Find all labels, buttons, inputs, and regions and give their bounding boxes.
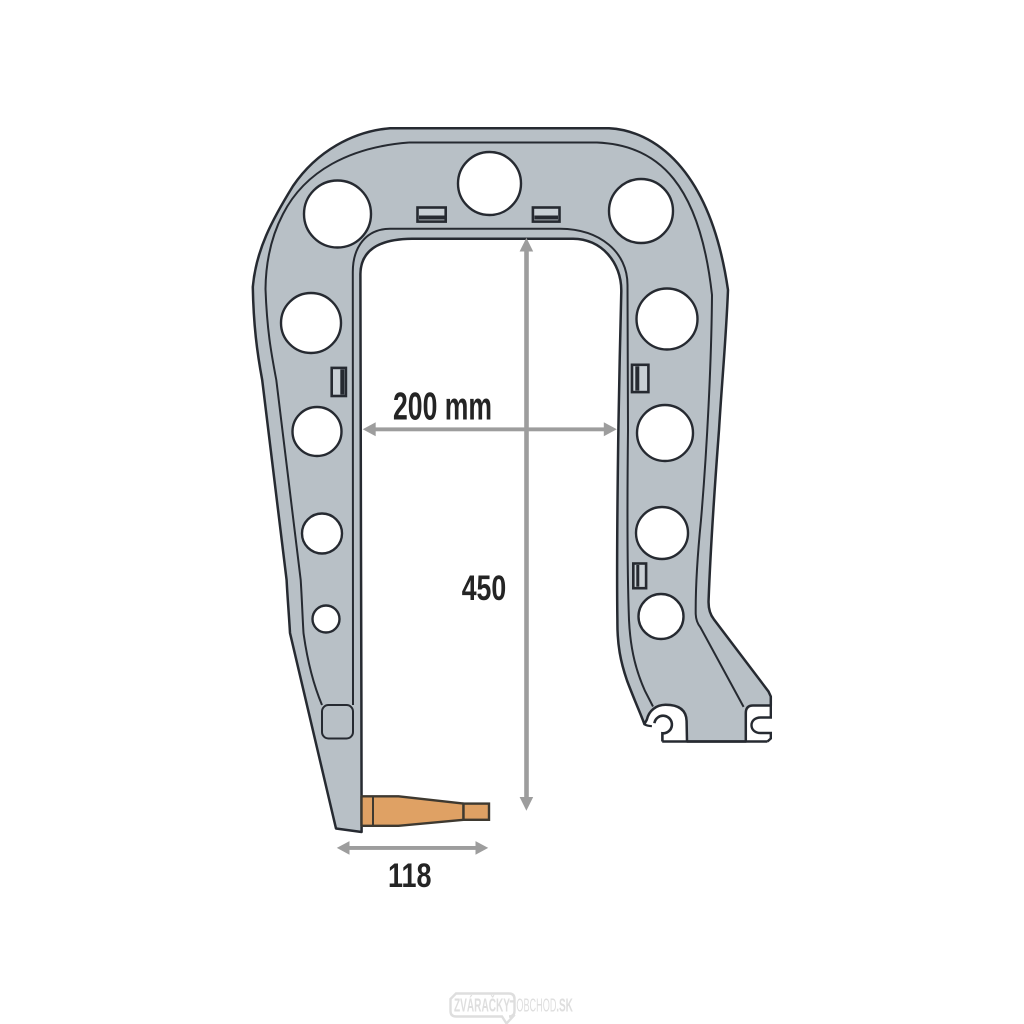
- svg-text:OBCHOD: OBCHOD: [516, 995, 556, 1016]
- svg-text:450: 450: [462, 568, 507, 608]
- svg-text:200 mm: 200 mm: [393, 386, 492, 429]
- svg-text:.SK: .SK: [556, 995, 573, 1016]
- svg-text:-: -: [509, 989, 515, 1010]
- svg-text:ZVÁRAČKY: ZVÁRAČKY: [454, 995, 510, 1016]
- svg-text:118: 118: [388, 857, 432, 895]
